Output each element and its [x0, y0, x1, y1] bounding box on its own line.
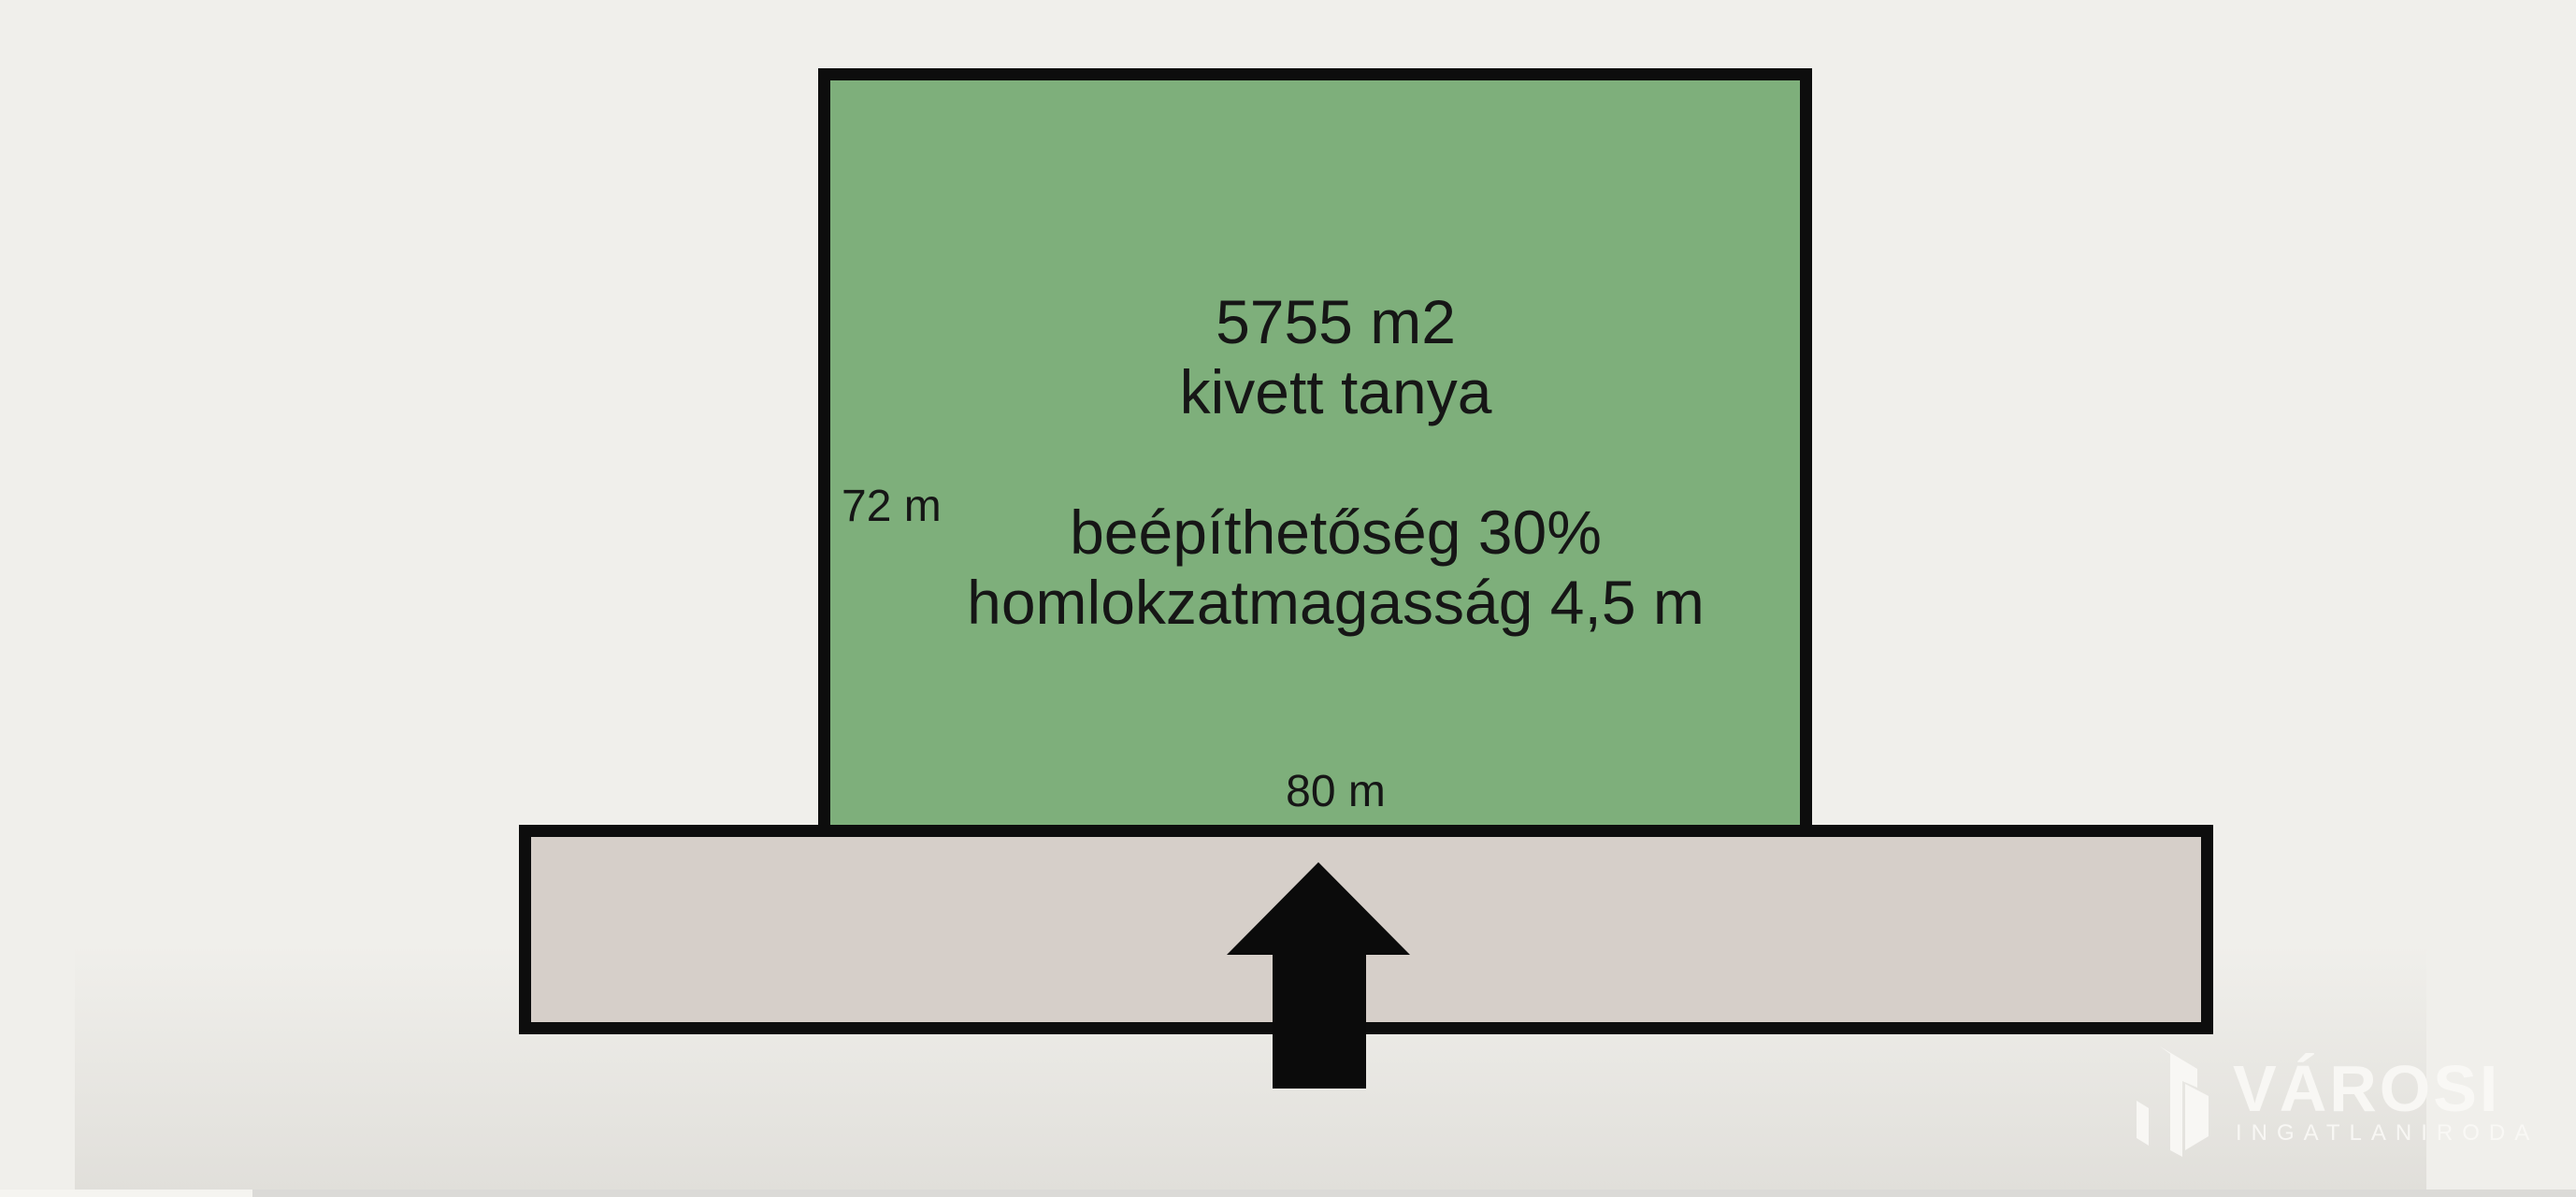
bottom-progress-bar[interactable]	[0, 1190, 2576, 1197]
brand-subtitle: INGATLANIRODA	[2236, 1121, 2539, 1146]
plot-facade-height-label: homlokzatmagasság 4,5 m	[851, 568, 1820, 638]
width-dimension-label: 80 m	[851, 769, 1820, 815]
brand-name: VÁROSI	[2233, 1056, 2500, 1121]
progress-played-segment	[0, 1190, 252, 1197]
up-arrow-shape	[1227, 862, 1410, 1089]
plot-coverage-label: beépíthetőség 30%	[851, 498, 1820, 568]
building-bar-small	[2137, 1101, 2149, 1146]
entrance-up-arrow-icon	[1225, 860, 1412, 1089]
plot-text-spacer	[851, 427, 1820, 498]
building-block	[2185, 1084, 2209, 1150]
plot-land-use-label: kivett tanya	[851, 357, 1820, 427]
depth-dimension-label: 72 m	[842, 483, 942, 530]
brand-watermark: VÁROSI INGATLANIRODA	[2123, 1043, 2562, 1178]
plot-info: 5755 m2 kivett tanya beépíthetőség 30% h…	[851, 287, 1820, 638]
buildings-icon	[2130, 1043, 2216, 1166]
diagram-canvas: 5755 m2 kivett tanya beépíthetőség 30% h…	[0, 0, 2576, 1197]
plot-area-label: 5755 m2	[851, 287, 1820, 357]
